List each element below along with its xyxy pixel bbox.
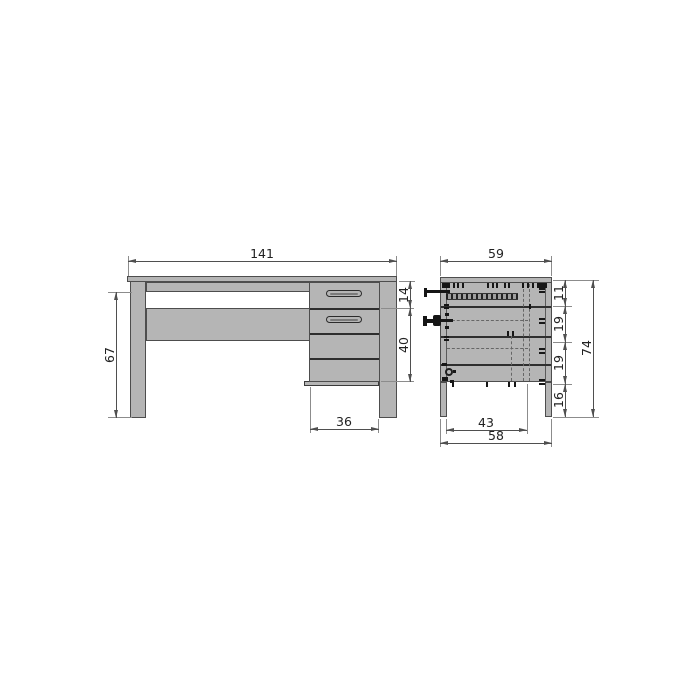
dim-section1-label: 11 (553, 285, 566, 301)
screw-mark (507, 331, 509, 336)
screw-mark (539, 379, 545, 381)
drawer-slide-rail (446, 293, 518, 300)
arrowhead (440, 441, 448, 445)
screw-mark (539, 288, 545, 290)
screw-mark (512, 331, 514, 336)
screw-mark (457, 283, 459, 288)
screw-mark (532, 283, 534, 288)
screw-mark (539, 352, 545, 354)
hidden-line (447, 348, 528, 349)
hidden-line (511, 336, 512, 381)
handle-2-screw-shaft (441, 319, 453, 322)
screw-mark (504, 283, 506, 288)
screw-mark (539, 383, 545, 385)
dim-section4-label: 16 (553, 392, 566, 408)
side-divider-line (441, 364, 551, 366)
dim-total-height-label: 74 (581, 340, 594, 356)
arrowhead (591, 280, 595, 288)
dim-base-depth-label: 58 (488, 430, 504, 443)
dimension-line (440, 261, 552, 262)
hidden-line (529, 284, 530, 381)
arrowhead (563, 334, 567, 342)
screw-mark (539, 322, 545, 324)
screw-mark (445, 313, 449, 316)
screw-mark (514, 382, 516, 387)
arrowhead (563, 306, 567, 314)
screw-mark (486, 382, 488, 387)
screw-mark (539, 348, 545, 350)
arrowhead (544, 441, 552, 445)
screw-mark (445, 326, 449, 329)
arrowhead (563, 409, 567, 417)
bracket-mark (442, 363, 447, 366)
screw-mark (444, 307, 449, 309)
arrowhead (591, 409, 595, 417)
screw-mark (539, 291, 545, 293)
screw-mark (539, 318, 545, 320)
side-divider-line (441, 336, 551, 338)
side-view: 59 11 19 19 16 74 43 (0, 0, 700, 700)
screw-mark (508, 283, 510, 288)
screw-mark (496, 283, 498, 288)
screw-mark (444, 339, 449, 341)
dim-top-depth-label: 59 (488, 248, 504, 261)
arrowhead (544, 259, 552, 263)
side-divider-line (441, 306, 551, 308)
extension-line (527, 384, 528, 434)
screw-mark (529, 304, 531, 309)
screw-mark (492, 283, 494, 288)
hidden-line (447, 320, 528, 321)
screw-mark (522, 283, 524, 288)
screw-mark (452, 382, 454, 387)
back-leg-inner-edge (545, 283, 546, 381)
screw-mark (444, 304, 449, 306)
screw-mark (453, 370, 456, 373)
screw-mark (508, 382, 510, 387)
arrowhead (563, 384, 567, 392)
arrowhead (563, 342, 567, 350)
dimension-line (440, 443, 552, 444)
arrowhead (440, 259, 448, 263)
handle-1-screw-shaft (440, 290, 450, 293)
side-front-leg (440, 382, 447, 417)
extension-line (553, 417, 599, 418)
dim-section3-label: 19 (553, 355, 566, 371)
hidden-line (523, 284, 524, 381)
screw-mark (453, 283, 455, 288)
screw-mark (527, 283, 529, 288)
desk-technical-drawing: 141 67 14 40 36 (0, 0, 700, 700)
screw-mark (487, 283, 489, 288)
arrowhead (446, 428, 454, 432)
cam-lock-mark (445, 368, 453, 376)
arrowhead (563, 376, 567, 384)
dimension-line (446, 430, 527, 431)
screw-mark (444, 336, 449, 338)
arrowhead (519, 428, 527, 432)
dim-section2-label: 19 (553, 316, 566, 332)
handle-1-side-profile (427, 290, 440, 294)
screw-mark (462, 283, 464, 288)
corner-bracket-mark (442, 283, 449, 288)
handle-2-bracket (433, 315, 441, 326)
bracket-mark (442, 377, 448, 381)
